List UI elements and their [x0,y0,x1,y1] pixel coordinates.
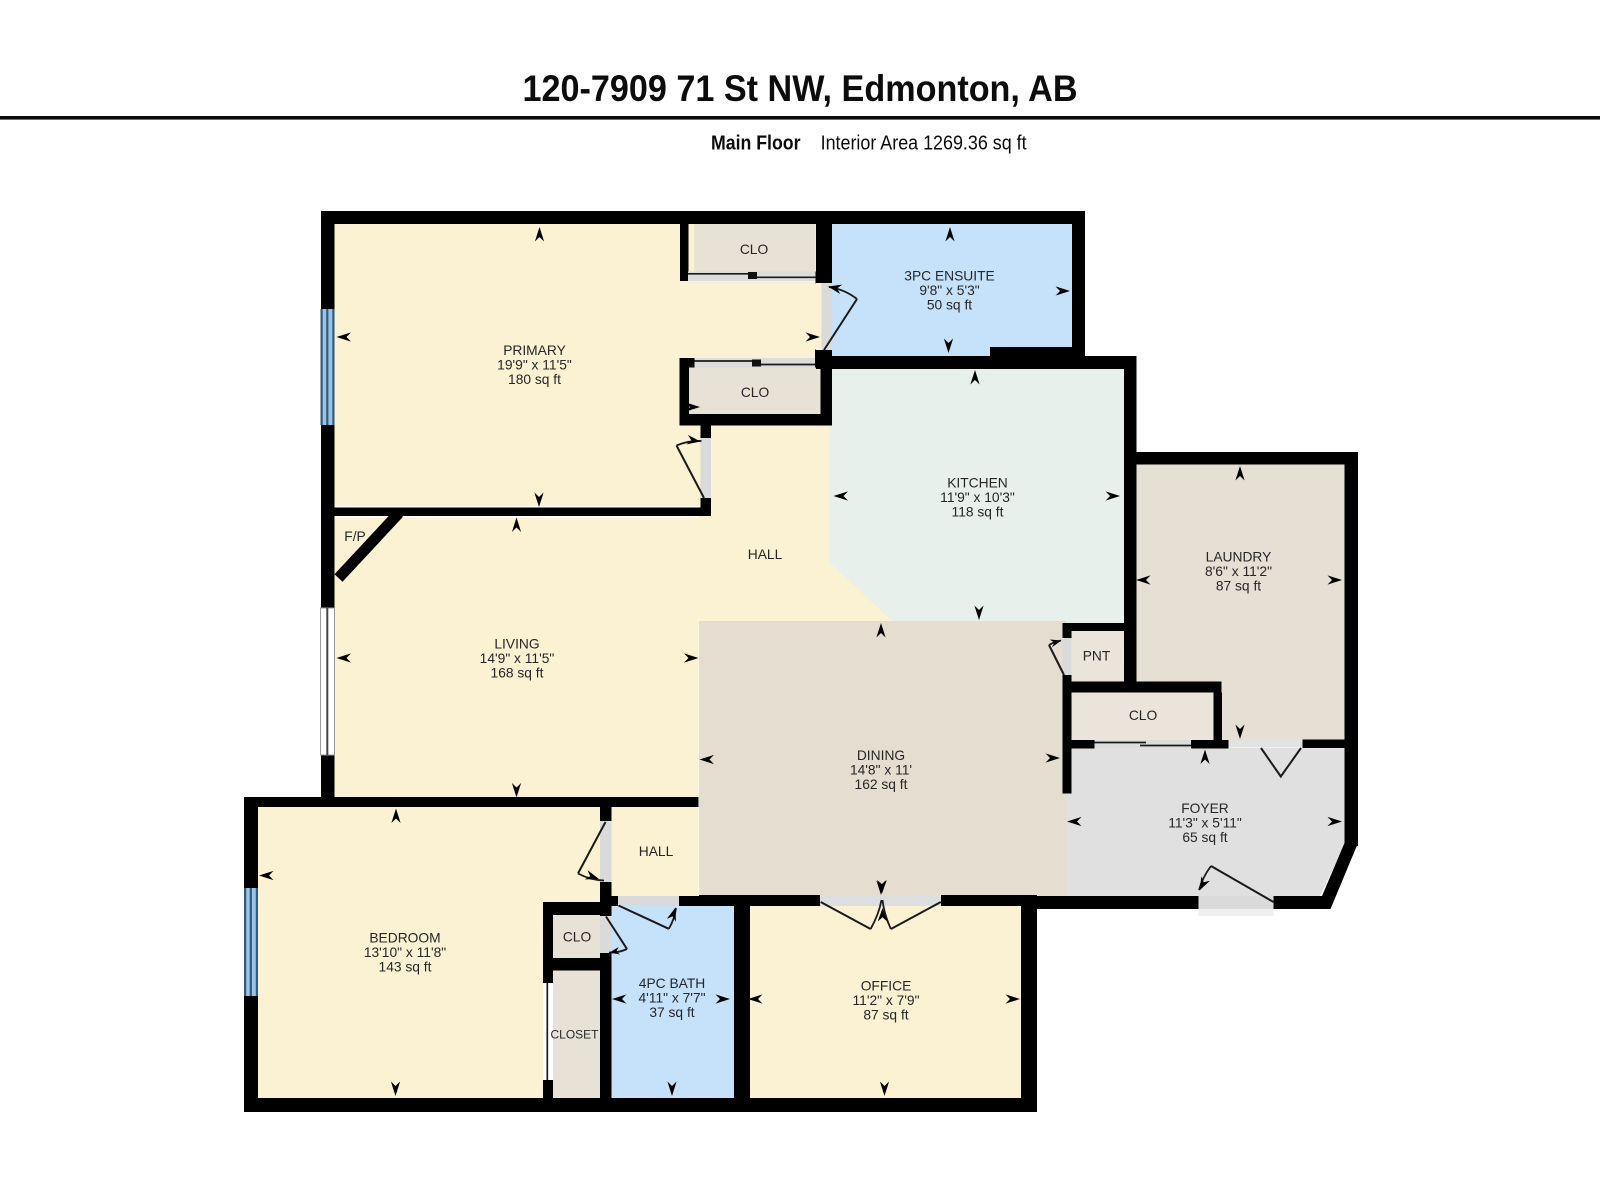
svg-text:120-7909 71 St NW, Edmonton, A: 120-7909 71 St NW, Edmonton, AB [523,68,1078,109]
svg-text:HALL: HALL [748,547,783,562]
svg-text:CLO: CLO [563,929,592,944]
svg-text:CLO: CLO [1129,708,1158,723]
svg-text:DINING14'8" x 11'162 sq ft: DINING14'8" x 11'162 sq ft [850,748,912,792]
svg-text:PRIMARY19'9" x 11'5"180 sq ft: PRIMARY19'9" x 11'5"180 sq ft [497,343,572,387]
svg-text:F/P: F/P [344,529,365,544]
svg-text:CLO: CLO [741,385,770,400]
svg-text:CLOSET: CLOSET [550,1028,599,1042]
svg-text:PNT: PNT [1083,648,1111,663]
svg-text:Interior Area 1269.36 sq ft: Interior Area 1269.36 sq ft [821,133,1027,155]
svg-text:HALL: HALL [639,844,674,859]
svg-text:CLO: CLO [740,242,769,257]
svg-text:Main Floor: Main Floor [711,133,801,155]
